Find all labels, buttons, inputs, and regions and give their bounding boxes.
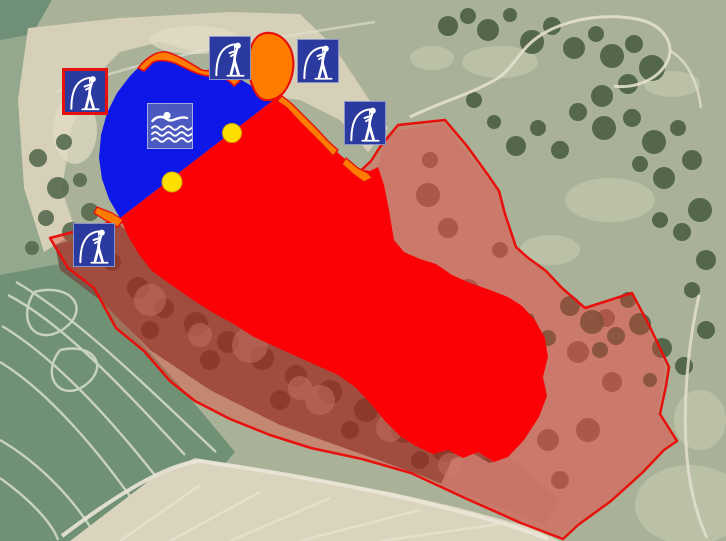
angler-icon xyxy=(65,71,105,112)
fishing-spot-marker[interactable] xyxy=(344,101,386,145)
angler-icon xyxy=(298,40,338,82)
swimming-area-marker[interactable] xyxy=(147,103,193,149)
pond-area[interactable] xyxy=(248,33,293,100)
angler-icon xyxy=(345,102,385,144)
fishing-spot-marker[interactable] xyxy=(209,36,251,80)
fishing-spot-marker-restricted[interactable] xyxy=(62,68,108,115)
swimmer-icon xyxy=(148,104,192,148)
buoy-marker[interactable] xyxy=(162,172,182,192)
aerial-map-canvas[interactable] xyxy=(0,0,726,541)
fishing-spot-marker[interactable] xyxy=(297,39,339,83)
buoy-marker[interactable] xyxy=(223,124,242,143)
angler-icon xyxy=(210,37,250,79)
fishing-spot-marker[interactable] xyxy=(73,223,115,267)
map-layers xyxy=(0,0,726,541)
angler-icon xyxy=(74,224,114,266)
